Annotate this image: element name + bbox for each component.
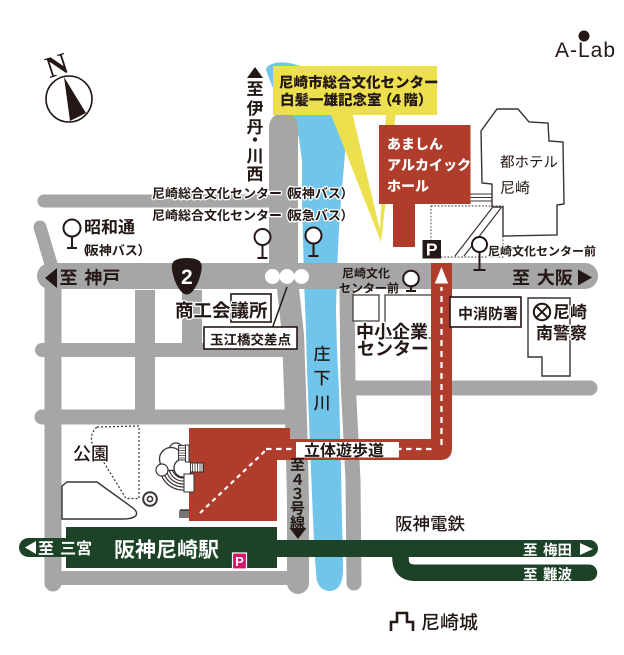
svg-text:A-Lab: A-Lab	[555, 39, 616, 62]
svg-text:P: P	[426, 240, 438, 260]
svg-text:2: 2	[181, 266, 193, 289]
svg-text:P: P	[235, 554, 244, 569]
